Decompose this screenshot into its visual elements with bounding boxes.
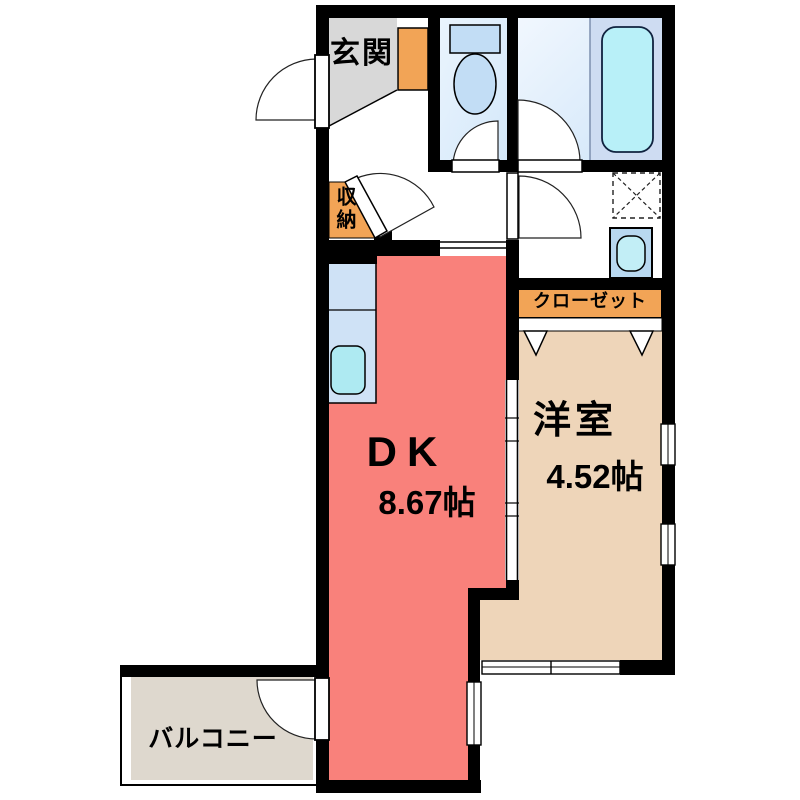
toilet-tank-icon [450,25,500,53]
bathtub-icon [602,27,653,152]
storage-label: 収納 [327,186,355,232]
wall-left-upper [316,5,329,57]
floorplan-canvas: 玄関 収納 クローゼット DK 8.67帖 洋室 4.52帖 バルコニー [0,0,800,800]
washing-machine-space [613,173,660,218]
wall-dk-top-chunk [316,240,377,264]
genkan-floor [329,18,397,127]
kitchen-sink-icon [331,346,365,394]
window-icon-dk-lower [467,682,481,745]
window-icon-west-bottom [482,661,620,674]
wall-washroom-bottom [518,278,675,290]
toilet-icon [454,54,496,114]
door-swing-icon-entrance [256,55,329,128]
wall-left-dk [316,240,329,679]
wall-partition-stub [506,580,519,600]
genkan-label: 玄関 [329,37,395,70]
floorplan-drawing [0,0,800,800]
door-swing-icon-washroom [507,173,581,239]
closet-track [518,318,662,331]
wall-toilet-left [428,18,440,162]
wall-western-bottom-right [620,660,675,675]
wall-balcony-top [121,665,317,677]
dk-size-label: 8.67帖 [347,485,507,521]
shoe-cabinet [398,28,428,90]
wall-bottom [316,780,481,793]
washbasin-icon [610,228,652,278]
wall-right [662,5,675,675]
western-room-size-label: 4.52帖 [515,459,675,495]
wall-toilet-bath-divider [507,18,518,160]
window-icon-west-right-2 [661,524,675,565]
dk-label: DK [337,429,477,475]
dk-entry-opening [440,240,506,256]
balcony-label: バルコニー [133,726,293,754]
kitchen-counter [327,263,376,403]
closet-label: クローゼット [518,292,662,312]
wall-top [316,5,675,18]
western-room-label: 洋室 [505,401,645,443]
